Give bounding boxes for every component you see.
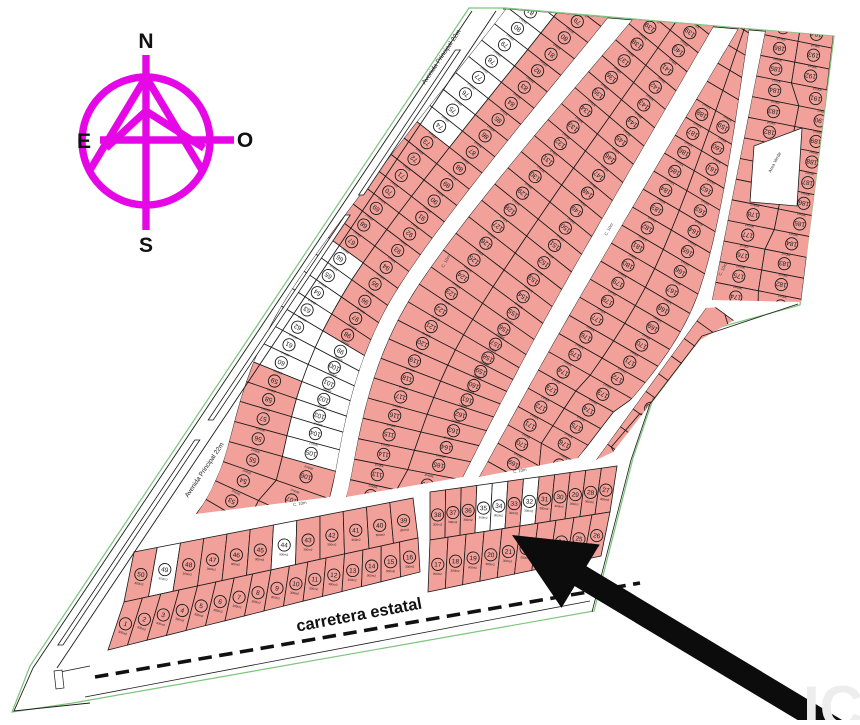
svg-text:300m2: 300m2 xyxy=(531,0,541,9)
svg-text:190: 190 xyxy=(814,116,826,125)
svg-text:39: 39 xyxy=(400,517,408,525)
svg-text:13: 13 xyxy=(349,567,357,574)
svg-text:carretera estatal: carretera estatal xyxy=(295,595,424,636)
svg-text:28: 28 xyxy=(586,489,594,497)
svg-text:300m2: 300m2 xyxy=(723,0,733,2)
svg-text:32: 32 xyxy=(525,498,533,506)
svg-text:199: 199 xyxy=(703,417,716,429)
svg-text:300m2: 300m2 xyxy=(524,509,534,514)
svg-text:300m2: 300m2 xyxy=(414,495,424,501)
svg-text:300m2: 300m2 xyxy=(463,518,473,522)
svg-text:48: 48 xyxy=(184,561,193,569)
svg-text:30: 30 xyxy=(556,494,564,502)
svg-text:47: 47 xyxy=(208,557,216,565)
svg-text:300m2: 300m2 xyxy=(723,394,733,403)
svg-text:300m2: 300m2 xyxy=(255,557,265,562)
svg-text:300m2: 300m2 xyxy=(710,412,720,421)
svg-text:300m2: 300m2 xyxy=(327,543,337,547)
svg-text:29: 29 xyxy=(571,491,579,499)
svg-text:15: 15 xyxy=(387,559,395,566)
svg-text:21: 21 xyxy=(504,548,512,556)
svg-text:300m2: 300m2 xyxy=(494,513,504,517)
svg-text:52: 52 xyxy=(216,515,226,525)
svg-text:300m2: 300m2 xyxy=(433,572,443,576)
svg-text:19: 19 xyxy=(469,555,477,563)
svg-text:45: 45 xyxy=(256,547,264,555)
svg-text:200: 200 xyxy=(667,418,680,430)
svg-text:300m2: 300m2 xyxy=(765,0,775,2)
svg-text:206: 206 xyxy=(691,354,704,366)
svg-text:300m2: 300m2 xyxy=(749,359,759,368)
svg-text:IC: IC xyxy=(803,674,860,720)
svg-text:300m2: 300m2 xyxy=(468,565,478,570)
svg-text:300m2: 300m2 xyxy=(591,0,601,2)
svg-text:300m2: 300m2 xyxy=(433,522,443,526)
svg-text:300m2: 300m2 xyxy=(450,568,460,572)
svg-text:196: 196 xyxy=(742,365,755,377)
svg-text:42: 42 xyxy=(328,532,336,539)
svg-text:44: 44 xyxy=(280,542,288,549)
svg-text:78: 78 xyxy=(585,0,595,10)
svg-text:300m2: 300m2 xyxy=(816,1,826,7)
svg-text:300m2: 300m2 xyxy=(813,22,823,28)
svg-text:300m2: 300m2 xyxy=(386,569,396,573)
svg-text:300m2: 300m2 xyxy=(448,520,458,524)
svg-text:138: 138 xyxy=(695,8,708,20)
svg-text:300m2: 300m2 xyxy=(509,511,519,516)
svg-text:37: 37 xyxy=(449,510,457,517)
svg-text:300m2: 300m2 xyxy=(209,525,219,533)
svg-text:27: 27 xyxy=(602,487,611,495)
svg-text:300m2: 300m2 xyxy=(776,315,786,321)
svg-text:300m2: 300m2 xyxy=(279,552,289,557)
svg-text:300m2: 300m2 xyxy=(405,565,415,569)
svg-text:E: E xyxy=(77,130,91,153)
svg-text:300m2: 300m2 xyxy=(827,6,837,14)
svg-text:16: 16 xyxy=(406,554,414,561)
svg-text:152: 152 xyxy=(821,12,834,24)
svg-text:208: 208 xyxy=(665,390,678,402)
svg-text:300m2: 300m2 xyxy=(351,538,361,542)
svg-text:137: 137 xyxy=(716,0,729,10)
svg-text:35: 35 xyxy=(480,505,488,512)
svg-text:194: 194 xyxy=(759,0,772,12)
svg-text:300m2: 300m2 xyxy=(663,0,673,7)
svg-text:187: 187 xyxy=(777,22,789,31)
svg-text:153: 153 xyxy=(780,12,793,24)
svg-text:205: 205 xyxy=(703,337,716,349)
svg-text:38: 38 xyxy=(434,512,442,519)
svg-text:34: 34 xyxy=(495,503,503,510)
svg-text:40: 40 xyxy=(376,522,384,529)
svg-text:195: 195 xyxy=(813,8,825,17)
svg-text:31: 31 xyxy=(541,496,549,504)
svg-text:300m2: 300m2 xyxy=(729,306,739,312)
svg-text:41: 41 xyxy=(352,527,360,534)
svg-text:140: 140 xyxy=(656,3,669,15)
svg-text:300m2: 300m2 xyxy=(646,500,656,509)
svg-text:180: 180 xyxy=(773,322,785,331)
svg-text:300m2: 300m2 xyxy=(780,15,790,21)
svg-text:300m2: 300m2 xyxy=(347,578,357,583)
svg-text:300m2: 300m2 xyxy=(697,349,707,358)
svg-text:300m2: 300m2 xyxy=(817,109,827,115)
svg-text:300m2: 300m2 xyxy=(376,533,386,538)
svg-text:300m2: 300m2 xyxy=(478,515,488,519)
svg-text:300m2: 300m2 xyxy=(485,562,495,567)
svg-text:O: O xyxy=(237,129,253,152)
svg-text:197: 197 xyxy=(729,382,742,394)
svg-text:33: 33 xyxy=(510,501,518,508)
svg-text:198: 198 xyxy=(716,400,729,412)
svg-text:C. 10m: C. 10m xyxy=(293,500,308,507)
svg-text:20: 20 xyxy=(487,552,495,560)
svg-text:12: 12 xyxy=(330,572,338,580)
svg-text:C. 10m: C. 10m xyxy=(513,467,528,474)
svg-text:188: 188 xyxy=(781,2,793,11)
svg-text:46: 46 xyxy=(232,552,240,560)
svg-text:14: 14 xyxy=(368,563,376,570)
svg-text:151: 151 xyxy=(831,0,844,6)
svg-text:N: N xyxy=(138,30,153,53)
svg-text:10: 10 xyxy=(292,581,301,589)
svg-text:300m2: 300m2 xyxy=(784,0,794,1)
svg-text:11: 11 xyxy=(311,576,319,584)
svg-text:C. 10m: C. 10m xyxy=(603,222,614,237)
svg-text:204: 204 xyxy=(640,506,653,518)
svg-text:43: 43 xyxy=(304,537,312,544)
svg-text:S: S xyxy=(139,234,153,257)
svg-text:300m2: 300m2 xyxy=(674,413,684,422)
svg-text:300m2: 300m2 xyxy=(273,510,283,518)
svg-text:300m2: 300m2 xyxy=(736,377,746,386)
svg-text:36: 36 xyxy=(464,508,472,515)
svg-text:300m2: 300m2 xyxy=(367,573,377,577)
svg-text:300m2: 300m2 xyxy=(786,7,796,15)
svg-text:207: 207 xyxy=(678,372,691,384)
svg-text:300m2: 300m2 xyxy=(685,367,695,376)
svg-text:300m2: 300m2 xyxy=(539,506,549,511)
svg-text:300m2: 300m2 xyxy=(672,384,682,393)
svg-text:300m2: 300m2 xyxy=(702,3,712,12)
svg-text:17: 17 xyxy=(434,561,442,568)
svg-text:300m2: 300m2 xyxy=(303,547,313,551)
svg-text:18: 18 xyxy=(452,558,460,565)
